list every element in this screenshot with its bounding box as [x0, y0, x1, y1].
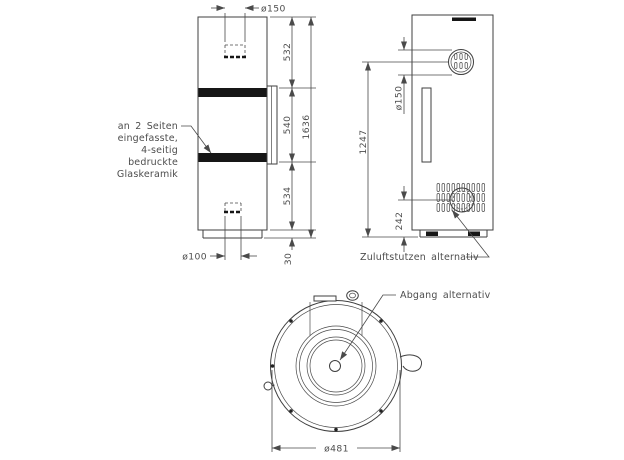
dim-text-flue-diameter-side: ø150: [394, 86, 405, 111]
side-top-slot: [452, 18, 476, 22]
dim-text-flue-center-height: 1247: [358, 130, 369, 155]
side-door-edge: [422, 88, 431, 162]
front-view: ø150 532 540 534 30 1636 ø100: [117, 4, 316, 266]
dim-text-total-height: 1636: [301, 115, 312, 140]
outlet-label: Abgang alternativ: [340, 290, 491, 360]
top-view: ø481 Abgang alternativ: [264, 290, 491, 455]
top-door-handle: [400, 355, 421, 371]
dim-text-plinth-height: 30: [283, 253, 294, 266]
glass-bottom-print-bar: [199, 153, 267, 162]
front-plinth: [203, 230, 262, 238]
glass-label-line-5: Glaskeramik: [117, 169, 178, 180]
side-dim-flue-height: 1247: [358, 62, 418, 237]
dim-text-diameter: ø481: [324, 444, 349, 455]
dim-text-flue-diameter-front: ø150: [261, 4, 286, 15]
front-body-outline: [198, 17, 267, 230]
side-view: ø150 1247 242 Zuluftstutzen alternativ: [358, 15, 493, 263]
glass-label-line-4: bedruckte: [128, 157, 178, 168]
top-rim-clips: [271, 319, 383, 431]
technical-drawing-page: ø150 532 540 534 30 1636 ø100: [0, 0, 624, 460]
stove-dimension-drawing: ø150 532 540 534 30 1636 ø100: [0, 0, 624, 460]
outlet-label-text: Abgang alternativ: [400, 290, 491, 301]
glass-label-line-1: an 2 Seiten: [118, 121, 178, 132]
glass-top-print-bar: [199, 88, 267, 97]
glass-side-wrap: [267, 86, 277, 164]
dim-text-door-section: 540: [282, 116, 293, 135]
dim-text-air-inlet-diameter: ø100: [182, 252, 207, 263]
glass-ceramic-label: an 2 Seiten eingefasste, 4-seitig bedruc…: [117, 121, 211, 180]
top-rim-knob: [347, 291, 359, 301]
outlet-leader: [340, 295, 396, 360]
dim-text-air-inlet-height: 242: [394, 212, 405, 231]
glass-label-line-3: 4-seitig: [141, 145, 178, 156]
dim-text-lower-section: 534: [282, 187, 293, 206]
side-foot-left: [426, 232, 438, 237]
dim-text-top-section: 532: [282, 43, 293, 62]
air-inlet-label-text: Zuluftstutzen alternativ: [360, 252, 479, 263]
side-plinth: [420, 230, 487, 237]
top-center-outlet: [330, 361, 341, 372]
top-rim-bracket: [314, 296, 336, 301]
glass-label-line-2: eingefasste,: [118, 133, 178, 144]
